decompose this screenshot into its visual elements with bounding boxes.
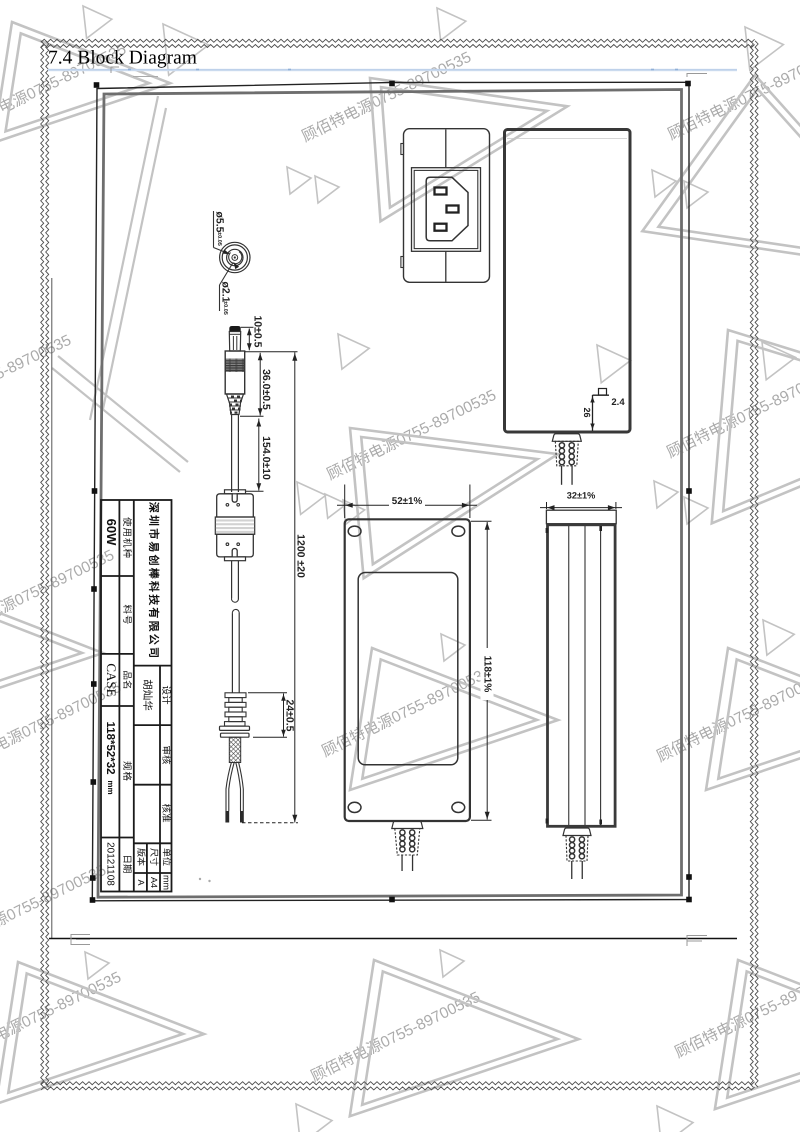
- svg-text:核准: 核准: [160, 803, 172, 823]
- svg-text:26: 26: [582, 407, 592, 417]
- svg-text:118±1%: 118±1%: [482, 656, 493, 693]
- svg-text:顾佰特电源0755-89700535: 顾佰特电源0755-89700535: [0, 331, 74, 429]
- svg-text:料号: 料号: [121, 604, 132, 625]
- svg-text:1200 ±20: 1200 ±20: [295, 534, 307, 578]
- svg-text:118*52*32: 118*52*32: [104, 721, 116, 774]
- svg-text:版本: 版本: [136, 848, 146, 866]
- svg-text:A4: A4: [149, 877, 159, 888]
- svg-text:单位: 单位: [161, 848, 171, 866]
- svg-text:日期: 日期: [121, 854, 132, 873]
- svg-text:审核: 审核: [160, 745, 172, 765]
- svg-text:ø5.5: ø5.5: [214, 211, 226, 232]
- svg-text:胡灿华: 胡灿华: [141, 679, 153, 711]
- svg-text:品名: 品名: [121, 670, 133, 689]
- svg-text:CASE: CASE: [104, 663, 119, 696]
- svg-text:52±1%: 52±1%: [392, 496, 423, 507]
- svg-text:24±0.5: 24±0.5: [284, 699, 296, 731]
- svg-text:±0.05: ±0.05: [216, 232, 222, 246]
- svg-text:2.4: 2.4: [611, 397, 625, 408]
- svg-text:10±0.5: 10±0.5: [252, 315, 264, 347]
- svg-text:36.0±0.5: 36.0±0.5: [260, 369, 272, 410]
- svg-text:顾佰特电源0755-89700535: 顾佰特电源0755-89700535: [0, 968, 124, 1066]
- svg-text:深圳市易创棒科技有限公司: 深圳市易创棒科技有限公司: [147, 502, 160, 660]
- svg-text:7.4 Block Diagram: 7.4 Block Diagram: [48, 48, 197, 69]
- svg-text:mm: mm: [106, 780, 115, 794]
- svg-text:设计: 设计: [160, 685, 171, 705]
- svg-text:±0.05: ±0.05: [222, 301, 228, 315]
- svg-text:32±1%: 32±1%: [567, 491, 596, 501]
- svg-text:ø2.1: ø2.1: [220, 281, 232, 302]
- svg-text:顾佰特电源0755-89700535: 顾佰特电源0755-89700535: [308, 988, 483, 1086]
- svg-text:mm: mm: [161, 875, 171, 890]
- svg-text:A: A: [136, 879, 146, 885]
- svg-text:20121108: 20121108: [105, 842, 116, 886]
- svg-text:60W: 60W: [104, 519, 119, 546]
- svg-text:尺寸: 尺寸: [149, 848, 159, 866]
- svg-text:规格: 规格: [121, 761, 132, 782]
- svg-text:使用机种: 使用机种: [121, 517, 132, 559]
- svg-text:顾佰特电源0755-89700535: 顾佰特电源0755-89700535: [665, 46, 800, 144]
- svg-text:154.0±10: 154.0±10: [260, 436, 272, 480]
